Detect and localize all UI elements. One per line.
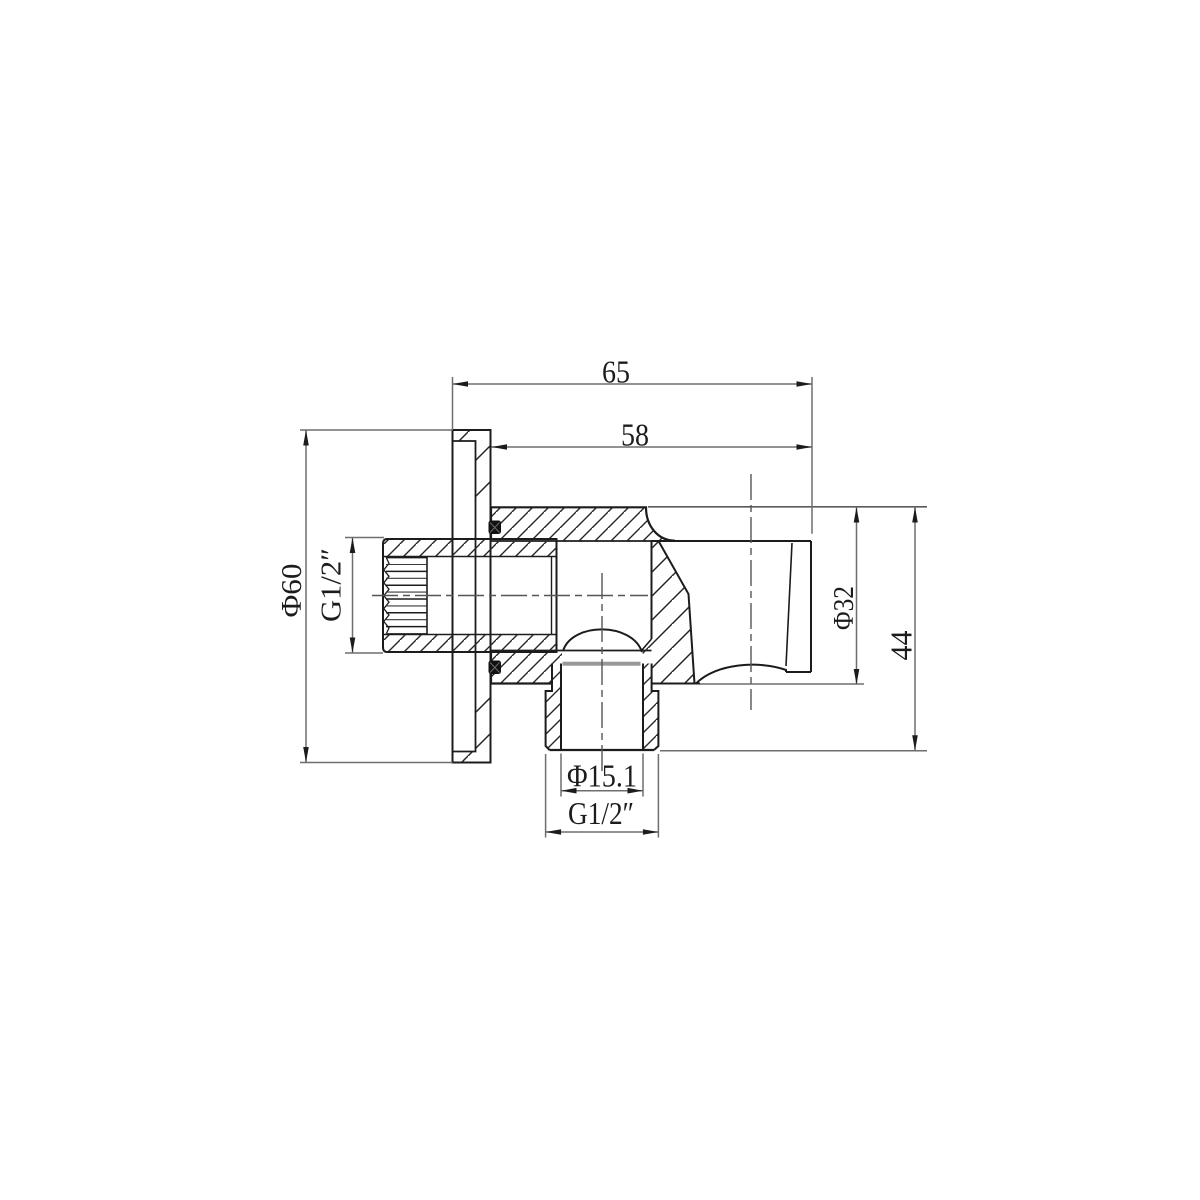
svg-text:Φ32: Φ32: [829, 586, 860, 630]
svg-text:Φ60: Φ60: [277, 564, 308, 618]
svg-text:Φ15.1: Φ15.1: [567, 758, 637, 794]
svg-text:G1/2″: G1/2″: [568, 795, 634, 831]
svg-text:44: 44: [884, 630, 919, 660]
svg-text:65: 65: [602, 354, 630, 390]
svg-text:G1/2″: G1/2″: [317, 548, 348, 622]
svg-text:58: 58: [621, 417, 649, 453]
